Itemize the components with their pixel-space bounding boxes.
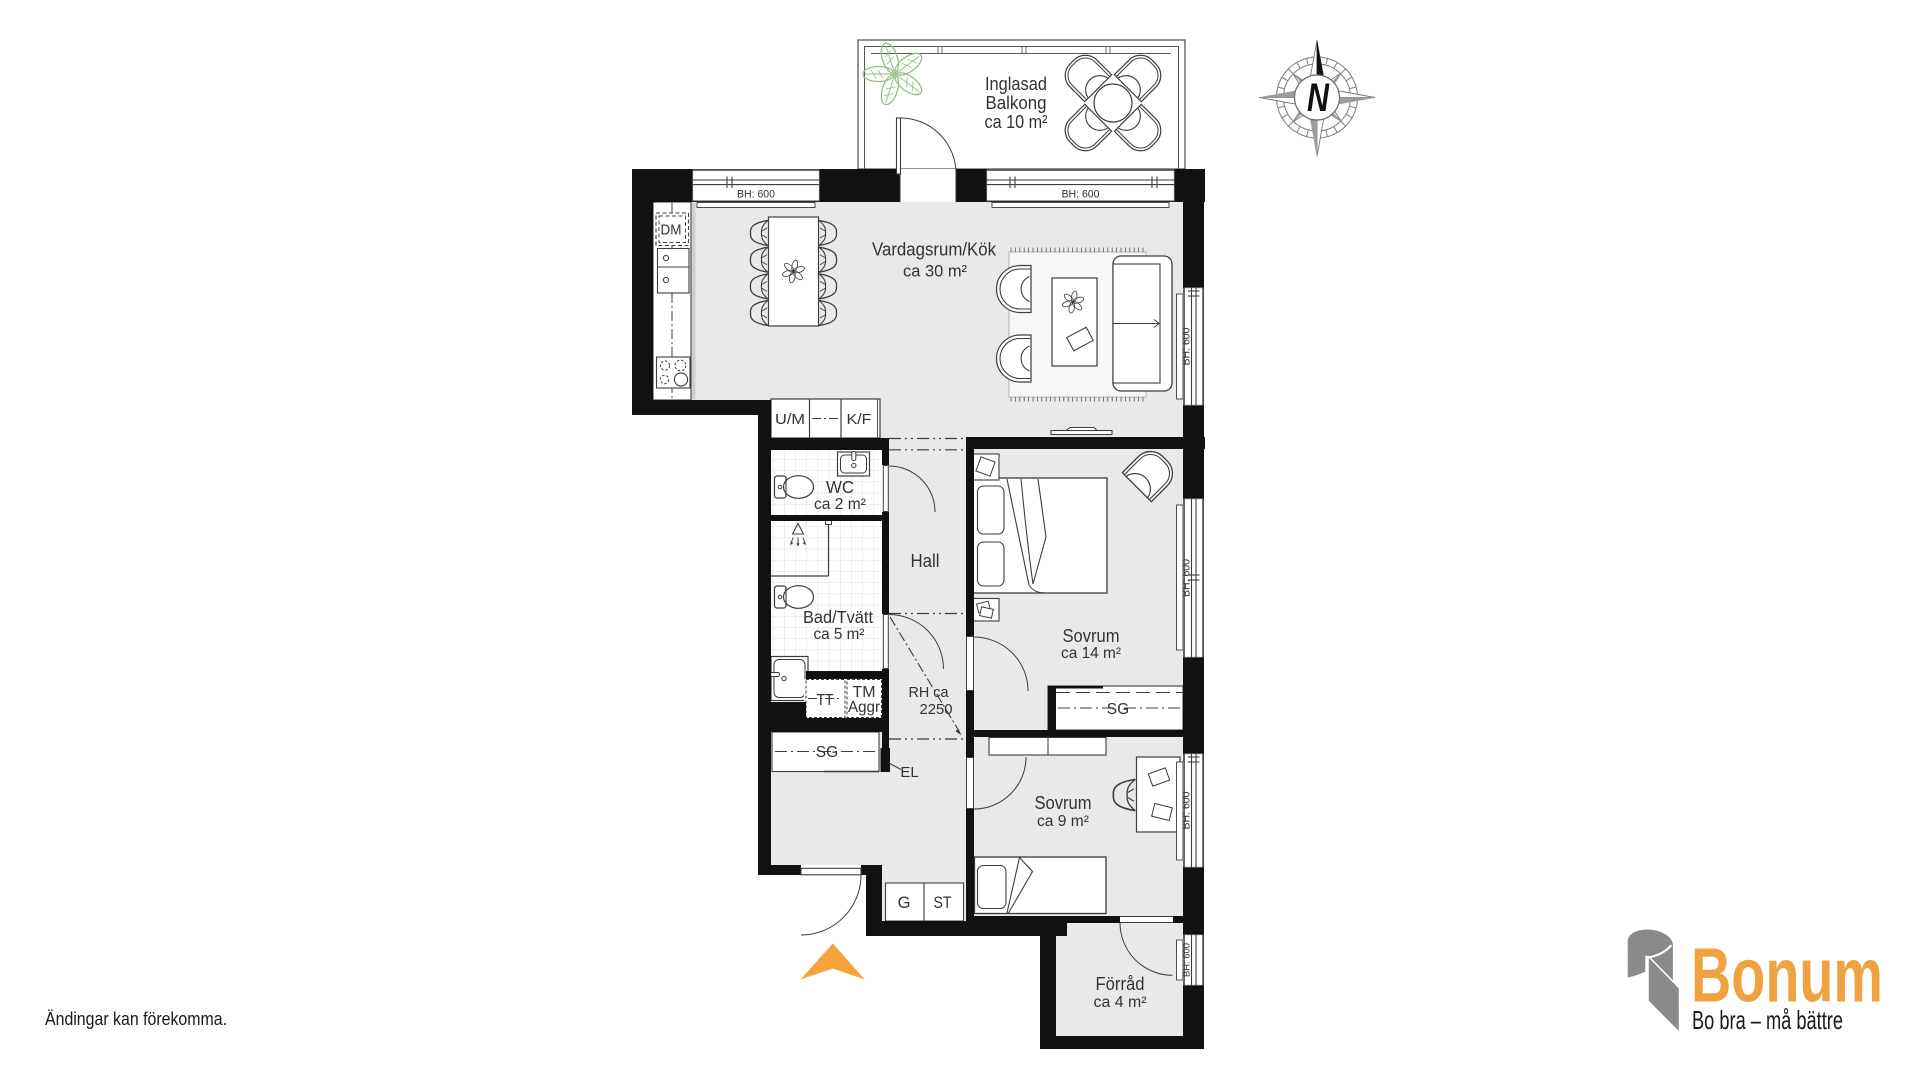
svg-text:ca 30 m²: ca 30 m² [903, 263, 968, 281]
svg-text:N: N [1307, 76, 1330, 120]
svg-text:ca 9 m²: ca 9 m² [1037, 813, 1089, 830]
svg-text:ca 14 m²: ca 14 m² [1061, 645, 1121, 662]
svg-text:TT: TT [817, 692, 834, 709]
svg-text:BH: 600: BH: 600 [1062, 189, 1100, 201]
svg-text:Bo bra – må bättre: Bo bra – må bättre [1692, 1005, 1843, 1035]
svg-text:BH: 600: BH: 600 [737, 189, 775, 201]
svg-text:Aggr: Aggr [848, 699, 880, 716]
svg-text:Inglasad: Inglasad [985, 73, 1047, 94]
svg-text:WC: WC [826, 477, 854, 497]
svg-text:Vardagsrum/Kök: Vardagsrum/Kök [872, 239, 997, 260]
svg-text:EL: EL [900, 764, 918, 781]
svg-text:ca 2 m²: ca 2 m² [814, 496, 866, 513]
svg-text:ca 5 m²: ca 5 m² [814, 626, 865, 643]
svg-text:ca 4 m²: ca 4 m² [1094, 994, 1147, 1011]
svg-text:U/M: U/M [775, 411, 805, 428]
svg-text:2250: 2250 [920, 701, 953, 718]
svg-text:Förråd: Förråd [1096, 974, 1145, 994]
svg-text:SG: SG [1107, 701, 1129, 718]
svg-text:Balkong: Balkong [986, 92, 1047, 113]
svg-text:ca 10 m²: ca 10 m² [985, 111, 1048, 132]
svg-text:G: G [898, 894, 911, 912]
svg-text:DM: DM [661, 223, 682, 239]
svg-text:Bad/Tvätt: Bad/Tvätt [803, 607, 873, 627]
svg-text:Ändingar kan förekomma.: Ändingar kan förekomma. [45, 1009, 227, 1029]
svg-text:K/F: K/F [847, 411, 872, 428]
svg-text:SG: SG [816, 744, 838, 761]
svg-text:Hall: Hall [911, 551, 940, 571]
svg-text:Sovrum: Sovrum [1063, 626, 1120, 646]
svg-text:RH ca: RH ca [909, 684, 950, 701]
svg-text:Sovrum: Sovrum [1035, 793, 1092, 813]
svg-text:ST: ST [934, 894, 952, 912]
